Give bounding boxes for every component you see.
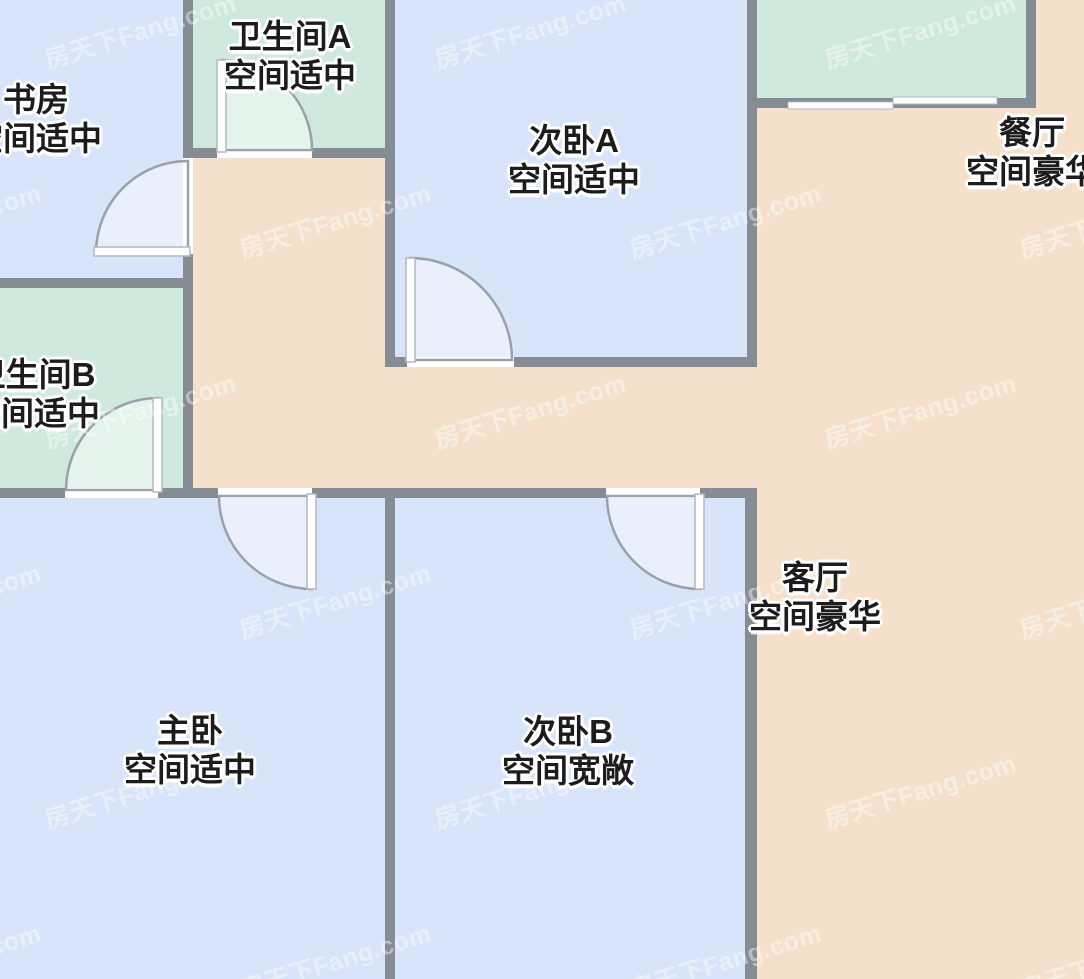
master-bedroom-area <box>0 493 390 979</box>
wall-vertical-master-bedroom-b <box>385 488 395 979</box>
sliding-door-panel-left <box>788 102 893 109</box>
bathroom-a-door-leaf <box>217 60 226 152</box>
kitchen-area <box>752 0 1031 104</box>
floor-plan-canvas: 房天下Fang.com房天下Fang.com房天下Fang.com房天下Fang… <box>0 0 1084 979</box>
wall-vertical-bedroom-b-right <box>745 488 757 979</box>
bedroom-a-door-leaf <box>406 258 415 362</box>
sliding-door-panel-right <box>893 97 997 104</box>
master-bedroom-door-leaf <box>307 494 316 589</box>
wall-horizontal-study-bathroom-b <box>0 278 193 288</box>
wall-vertical-bedroom-a-right <box>747 0 757 367</box>
wall-vertical-bedroom-a-left <box>385 0 395 367</box>
study-door-leaf <box>94 247 190 256</box>
bedroom-b-door-leaf <box>695 494 704 589</box>
wall-vertical-kitchen-right <box>1026 0 1036 108</box>
bathroom-b-door-leaf <box>153 398 162 492</box>
floor-plan-svg <box>0 0 1084 979</box>
